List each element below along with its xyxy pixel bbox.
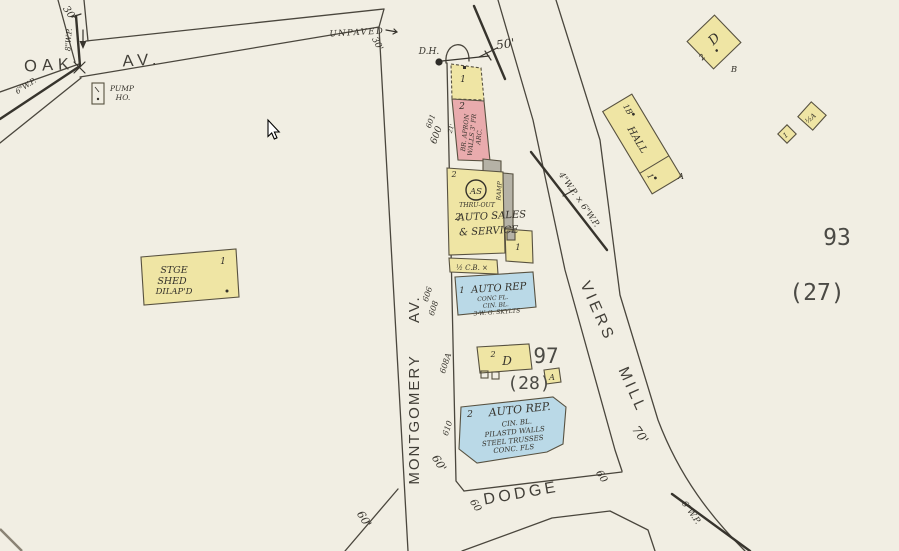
map-viewer: 1B HALL 1 OAK AV. MONTGOMERY AV. VIERS M…: [0, 0, 899, 551]
width-70: 70': [629, 423, 651, 446]
pipe-4in-6in-label: 4"W.P. × 6"W.P.: [555, 170, 601, 229]
dodge-label: DODGE: [482, 479, 560, 509]
paper-corner-mark: [0, 529, 22, 551]
width-30-unpaved: 30': [369, 36, 384, 53]
hall-ext-label: A: [677, 172, 684, 182]
address-610: 610: [441, 420, 454, 437]
d-building-ext: B: [730, 65, 737, 75]
road-lines: [0, 0, 745, 551]
storage-shed-story: 1: [220, 257, 226, 267]
viers-mill-label: VIERS MILL: [576, 279, 649, 416]
auto-sales-story-top: 2: [450, 170, 456, 179]
pump-house-mark: [95, 87, 99, 92]
viers-mill-east-edge: [556, 0, 745, 551]
unpaved-arrow: [386, 29, 397, 34]
auto-sales-name-1: AUTO SALES: [456, 209, 526, 224]
width-60-southwest: 60': [354, 508, 374, 529]
flow-arrow-head: [80, 41, 87, 49]
auto-sales-thruout: THRU-OUT: [459, 202, 496, 209]
dodge-south-edge: [462, 511, 655, 551]
auto-sales-symbol: AS: [469, 187, 482, 197]
pump-house-outline: [92, 83, 104, 104]
pump-house-label-2: HO.: [115, 93, 131, 102]
pipe-viers-mid: [531, 152, 607, 250]
road-line: [84, 0, 88, 41]
width-50: 50': [495, 36, 515, 52]
storage-shed-line-1: STGE: [160, 265, 187, 276]
block-97-label: 97: [533, 344, 558, 368]
pump-house-label-1: PUMP: [109, 84, 135, 93]
width-60-dodge-west: 60: [467, 497, 483, 514]
pipe-6in-left-label: 6"W.P.: [14, 76, 38, 96]
block-27-label: (27): [789, 280, 844, 306]
paint-shop-story: 2: [458, 102, 465, 112]
office-shed-building: [451, 64, 484, 100]
storage-shed-line-3: DILAP'D: [155, 287, 193, 297]
width-60-montgomery: 60': [429, 452, 449, 473]
auto-sales-ramp: RAMP: [495, 180, 503, 201]
auto-rep2-story: 2: [466, 410, 473, 420]
montgomery-av-label: MONTGOMERY AV.: [406, 295, 423, 484]
pipe-labels: 8"W.P. 6"W.P. 4"W.P. × 6"W.P. 6"W.P. D.H…: [14, 28, 703, 526]
block-93-label: 93: [823, 225, 851, 251]
address-608a: 608A: [438, 352, 453, 375]
pump-house-dot: [97, 98, 99, 100]
width-60-dodge-east: 60: [593, 468, 609, 485]
auto-sales-wing-story: 1: [515, 243, 520, 253]
map-canvas[interactable]: 1B HALL 1 OAK AV. MONTGOMERY AV. VIERS M…: [0, 0, 899, 551]
dwelling-class: D: [501, 354, 512, 368]
chimney-dot: [463, 66, 466, 69]
hall-building: 1B HALL 1: [603, 94, 682, 194]
hydrant-dot: [435, 58, 442, 65]
auto-rep1-story: 1: [459, 286, 464, 296]
dwelling-story: 2: [489, 350, 495, 359]
mouse-cursor: [268, 120, 279, 139]
dimension-21: 21': [447, 123, 457, 135]
corner-bevel: [379, 9, 384, 27]
office-shed-story: 1: [460, 75, 466, 85]
pipe-8in-label: 8"W.P.: [63, 28, 74, 52]
montgomery-west-edge: [379, 27, 408, 551]
shed-dot: [226, 290, 229, 293]
storage-shed-line-2: SHED: [157, 276, 187, 287]
hydrant-connector-line: [442, 56, 489, 61]
buildings: 1B HALL 1: [92, 15, 826, 463]
block-28-label: (28): [507, 373, 550, 394]
shed-a-class: A: [548, 373, 555, 382]
hydrant-label: D.H.: [418, 47, 440, 57]
porch-square: [492, 372, 499, 379]
oak-av-label: OAK AV.: [24, 50, 162, 75]
cb-shed-label: ½ C.B. ×: [456, 264, 488, 272]
